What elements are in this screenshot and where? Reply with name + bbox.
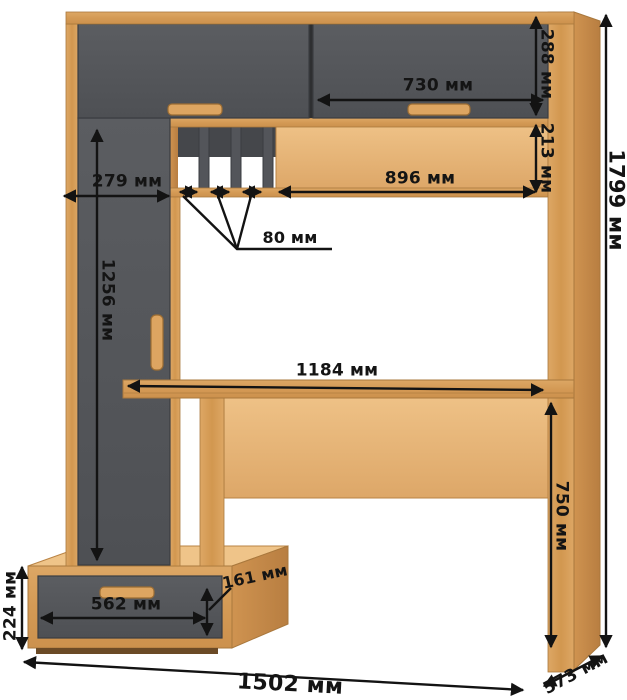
desk-back-panel: [224, 398, 548, 498]
dim-label-80: 80 мм: [263, 230, 318, 246]
dim-label-896: 896 мм: [385, 171, 455, 188]
dim-label-1256: 1256 мм: [99, 259, 116, 341]
upper-cabinets: [66, 12, 574, 118]
dim-label-1799: 1799 мм: [606, 149, 627, 251]
dim-label-730: 730 мм: [403, 78, 473, 95]
cd-divider-1: [199, 127, 209, 190]
dim-label-750: 750 мм: [553, 481, 570, 551]
cd-divider-3: [263, 127, 273, 190]
shelf-top-board: [170, 118, 548, 127]
desk-left-leg: [200, 398, 224, 566]
cd-divider-2: [231, 127, 241, 190]
right-side-panel-depth: [574, 12, 600, 670]
dim-label-213: 213 мм: [538, 123, 555, 193]
desk: [123, 380, 574, 566]
dim-label-562: 562 мм: [91, 597, 161, 614]
dim-label-1184: 1184 мм: [296, 363, 378, 380]
tall-cabinet-door-handle: [151, 315, 163, 370]
pedestal-plinth-shadow: [36, 648, 218, 654]
unit-top-panel: [66, 12, 574, 24]
shelf-slot-shadow: [170, 127, 276, 157]
furniture-dimension-diagram: 288 мм 730 мм 213 мм 896 мм 279 мм 1256 …: [0, 0, 627, 700]
upper-doors-gap: [309, 24, 313, 118]
unit-left-side-panel: [66, 24, 78, 566]
dim-label-224: 224 мм: [3, 571, 20, 641]
hutch-shelf-row: [170, 118, 548, 197]
dim-label-279: 279 мм: [92, 174, 162, 191]
dim-label-1502: 1502 мм: [236, 671, 343, 699]
dim-leader-80-3: [237, 196, 251, 249]
dim-label-288: 288 мм: [538, 29, 555, 99]
shelf-left-wall: [170, 127, 178, 189]
upper-left-door-handle: [168, 104, 222, 115]
upper-right-door-handle: [408, 104, 470, 115]
right-side: [548, 12, 600, 672]
